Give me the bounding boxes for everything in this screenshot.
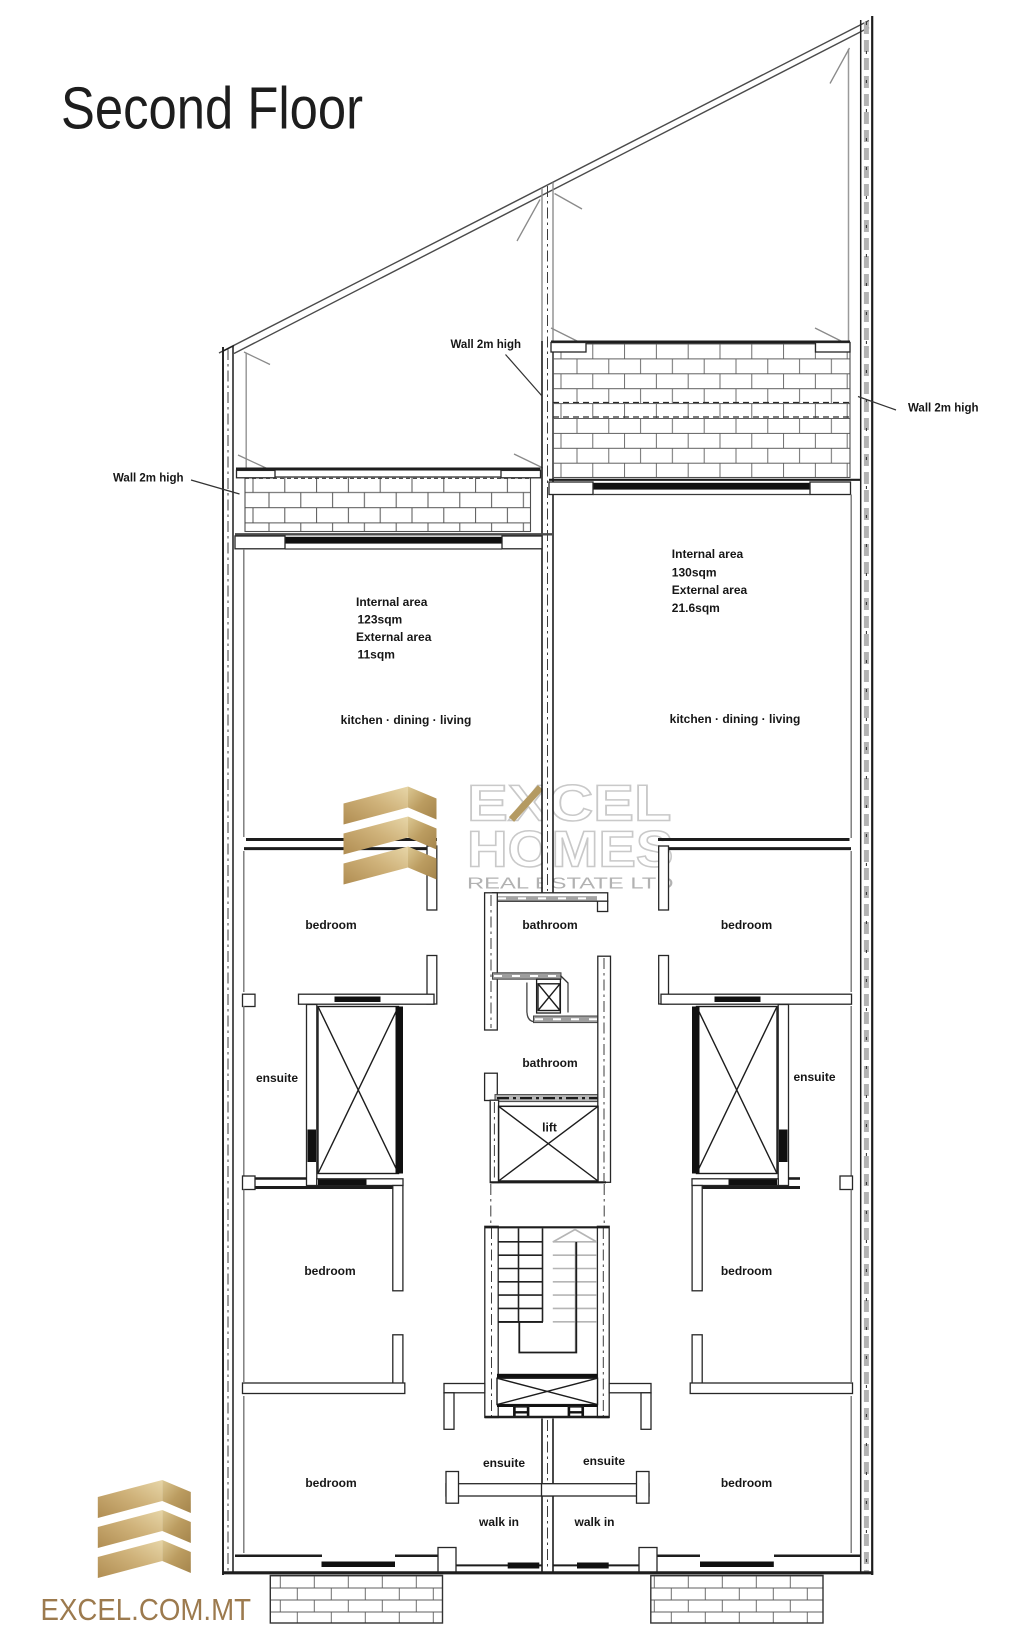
svg-text:ensuite: ensuite [793, 1070, 835, 1084]
svg-text:Internal area: Internal area [672, 547, 744, 561]
svg-text:lift: lift [542, 1121, 557, 1135]
svg-text:bedroom: bedroom [721, 918, 772, 932]
svg-text:External area: External area [356, 630, 432, 644]
svg-text:walk in: walk in [478, 1515, 519, 1529]
svg-text:ensuite: ensuite [256, 1071, 298, 1085]
svg-text:Wall 2m high: Wall 2m high [451, 339, 522, 351]
svg-text:bathroom: bathroom [522, 918, 577, 932]
svg-text:21.6sqm: 21.6sqm [672, 601, 720, 615]
svg-text:ensuite: ensuite [483, 1456, 525, 1470]
svg-text:123sqm: 123sqm [358, 613, 403, 627]
svg-text:Wall 2m high: Wall 2m high [908, 403, 979, 415]
svg-text:bedroom: bedroom [721, 1476, 772, 1490]
svg-text:11sqm: 11sqm [358, 648, 395, 662]
svg-text:walk in: walk in [573, 1515, 614, 1529]
svg-text:kitchen · dining · living: kitchen · dining · living [670, 712, 801, 726]
svg-text:ensuite: ensuite [583, 1454, 625, 1468]
svg-text:HOMES: HOMES [467, 821, 674, 878]
svg-text:bedroom: bedroom [304, 1264, 355, 1278]
svg-text:Internal area: Internal area [356, 595, 428, 609]
svg-text:EXCEL.COM.MT: EXCEL.COM.MT [41, 1592, 252, 1627]
svg-text:bedroom: bedroom [305, 918, 356, 932]
svg-text:Wall 2m high: Wall 2m high [113, 473, 184, 485]
svg-text:External area: External area [672, 583, 748, 597]
svg-text:bathroom: bathroom [522, 1056, 577, 1070]
svg-text:REAL ESTATE LTD: REAL ESTATE LTD [467, 876, 674, 893]
svg-text:Second Floor: Second Floor [61, 76, 363, 142]
svg-text:kitchen · dining · living: kitchen · dining · living [341, 713, 472, 727]
svg-text:130sqm: 130sqm [672, 566, 717, 580]
svg-text:bedroom: bedroom [721, 1264, 772, 1278]
svg-text:bedroom: bedroom [305, 1476, 356, 1490]
